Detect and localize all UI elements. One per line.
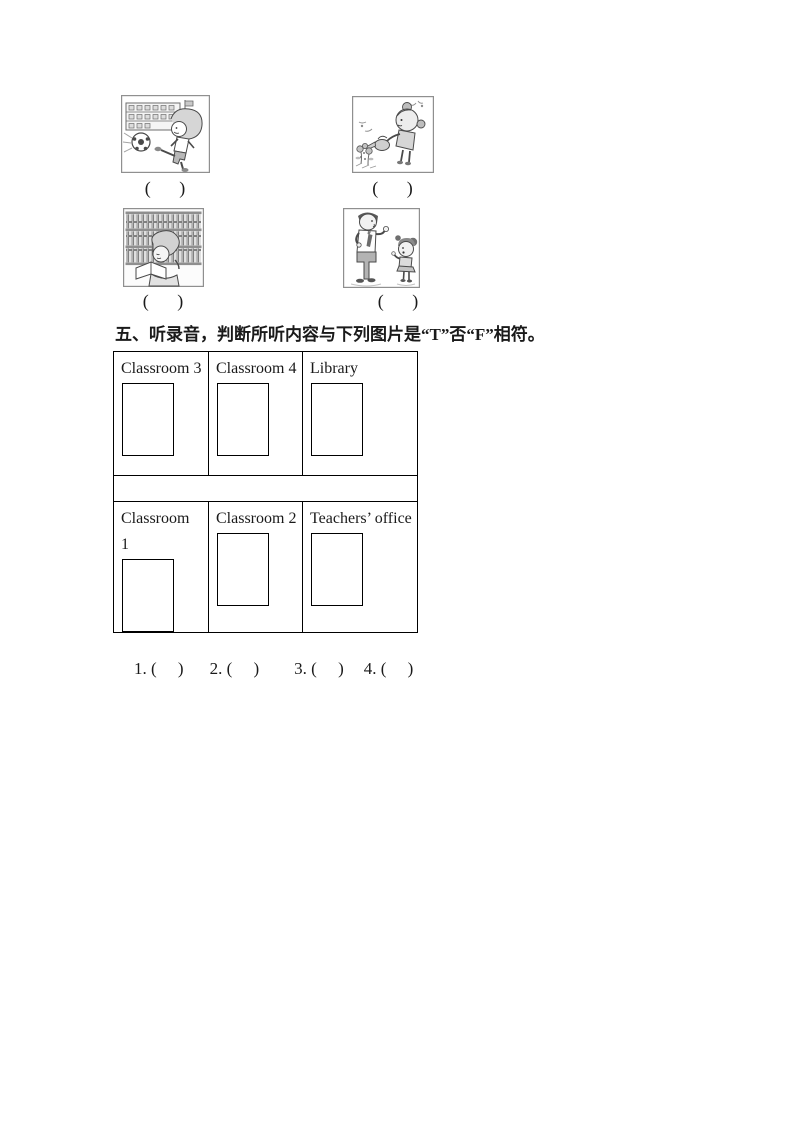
answer-blanks-line: 1. ( )2. ( )3. ( )4. ( ) bbox=[117, 639, 413, 699]
picture-girl-watering-flowers bbox=[352, 96, 434, 173]
answer-blank-1: 1. ( ) bbox=[134, 659, 184, 678]
section5-heading: 五、听录音，判断所听内容与下列图片是“T”否“F”相符。 bbox=[115, 320, 545, 345]
image-placeholder-box bbox=[217, 533, 269, 606]
cell-label: Teachers’ office bbox=[310, 506, 414, 532]
cell-classroom-3: Classroom 3 bbox=[114, 352, 209, 475]
rooms-table-row-2: Classroom 1 Classroom 2 Teachers’ office bbox=[114, 502, 417, 632]
answer-blank-4: 4. ( ) bbox=[364, 659, 414, 678]
worksheet-page: ( ) ( ) bbox=[0, 0, 793, 1122]
rooms-table-spacer-row bbox=[114, 475, 417, 502]
cell-label: Classroom 3 bbox=[121, 356, 205, 382]
answer-blank-picture-4: ( ) bbox=[360, 291, 437, 312]
cell-classroom-2: Classroom 2 bbox=[209, 502, 303, 632]
picture-boy-kicking-football bbox=[121, 95, 210, 173]
rooms-table-row-1: Classroom 3 Classroom 4 Library bbox=[114, 352, 417, 475]
picture-girl-reading-in-library bbox=[123, 208, 204, 287]
cell-classroom-1: Classroom 1 bbox=[114, 502, 209, 632]
cell-classroom-4: Classroom 4 bbox=[209, 352, 303, 475]
cell-teachers-office: Teachers’ office bbox=[303, 502, 417, 632]
answer-blank-picture-2: ( ) bbox=[352, 178, 434, 199]
image-placeholder-box bbox=[311, 383, 363, 456]
cell-library: Library bbox=[303, 352, 417, 475]
image-placeholder-box bbox=[122, 559, 174, 632]
teacher-talking-with-pupil-illustration bbox=[343, 208, 420, 288]
answer-blank-picture-1: ( ) bbox=[121, 178, 210, 199]
image-placeholder-box bbox=[122, 383, 174, 456]
image-placeholder-box bbox=[217, 383, 269, 456]
rooms-table: Classroom 3 Classroom 4 Library Classroo… bbox=[113, 351, 418, 633]
girl-watering-flowers-illustration bbox=[352, 96, 434, 173]
cell-label: Classroom 2 bbox=[216, 506, 299, 532]
cell-label: Classroom 1 bbox=[121, 506, 205, 558]
boy-kicking-football-illustration bbox=[121, 95, 210, 173]
cell-label: Classroom 4 bbox=[216, 356, 299, 382]
girl-reading-in-library-illustration bbox=[123, 208, 204, 287]
answer-blank-2: 2. ( ) bbox=[210, 659, 260, 678]
picture-teacher-talking-with-pupil bbox=[343, 208, 420, 288]
answer-blank-picture-3: ( ) bbox=[123, 291, 204, 312]
answer-blank-3: 3. ( ) bbox=[294, 659, 344, 678]
image-placeholder-box bbox=[311, 533, 363, 606]
cell-label: Library bbox=[310, 356, 414, 382]
